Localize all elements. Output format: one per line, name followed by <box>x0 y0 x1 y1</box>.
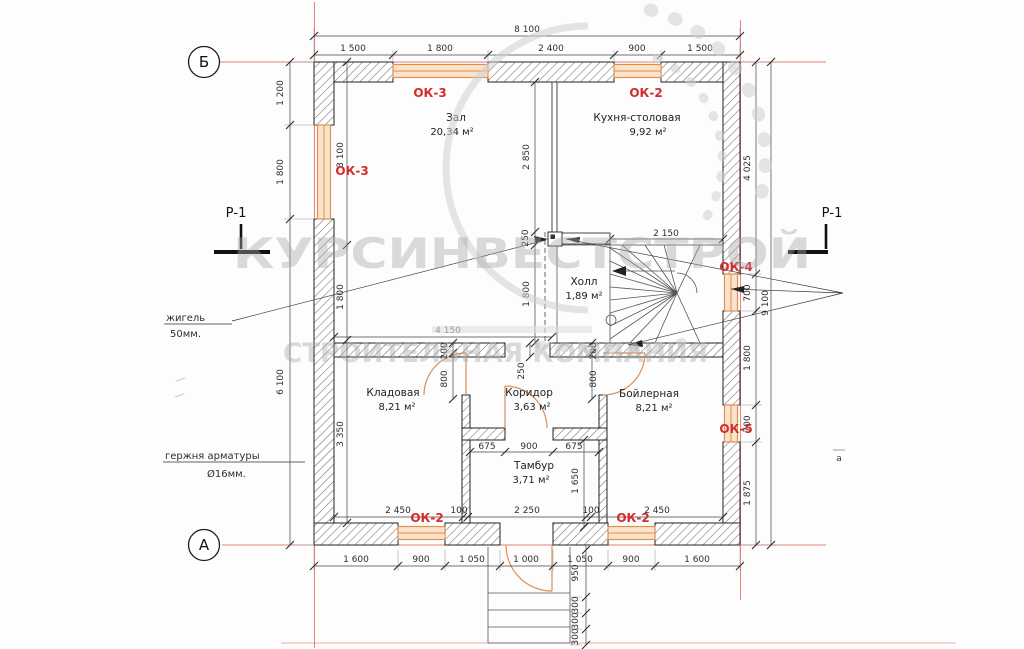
room-area: 1,89 м² <box>566 291 603 302</box>
window-ok3-top <box>393 65 488 78</box>
dim-label: 1 650 <box>571 468 581 494</box>
room-area: 9,92 м² <box>630 127 667 138</box>
floor-plan-drawing: 8 100 1 500 1 800 2 400 900 1 500 1 600 … <box>0 0 1024 649</box>
dim-label: 4 025 <box>743 155 753 181</box>
watermark-dots-inner <box>657 58 722 224</box>
dim-label: 6 100 <box>276 369 286 395</box>
room-area: 3,63 м² <box>514 402 551 413</box>
dim-label: 1 600 <box>684 555 710 565</box>
dim-label: 900 <box>628 44 645 54</box>
door-entry <box>506 545 552 591</box>
dim-label: 1 050 <box>567 555 593 565</box>
window-tag: ОК-2 <box>616 511 649 525</box>
dim-label: 900 <box>412 555 429 565</box>
dim-label: 1 500 <box>340 44 366 54</box>
room-name: Коридор <box>505 387 553 399</box>
section-label-left: Р-1 <box>226 206 247 221</box>
window-tag: ОК-2 <box>629 86 662 100</box>
partition-zal-kitchen <box>552 82 557 232</box>
watermark-bar <box>432 326 592 333</box>
note-text: 50мм. <box>170 329 201 340</box>
dim-label: 2 450 <box>385 506 411 516</box>
window-tag: ОК-5 <box>719 422 752 436</box>
dim-label: 300 <box>571 596 581 613</box>
dim-label: 1 600 <box>343 555 369 565</box>
room-area: 8,21 м² <box>379 402 416 413</box>
dim-label: 300 <box>571 612 581 629</box>
window-tag: ОК-2 <box>410 511 443 525</box>
dim-label: 1 000 <box>513 555 539 565</box>
dim-label: 1 800 <box>276 159 286 185</box>
dim-label: 1 800 <box>427 44 453 54</box>
room-name: Кухня-столовая <box>593 112 680 124</box>
dim-label: 1 800 <box>743 345 753 371</box>
room-name: Кладовая <box>366 387 419 399</box>
dim-label: 9 100 <box>761 290 771 316</box>
dim-label: 675 <box>478 442 495 452</box>
dim-label: 1 800 <box>336 284 346 310</box>
note-text: Ø16мм. <box>207 468 246 480</box>
dim-label: 100 <box>450 506 467 516</box>
dim-label: 950 <box>571 564 581 581</box>
room-area: 8,21 м² <box>636 403 673 414</box>
dim-label: 2 400 <box>538 44 564 54</box>
dim-label: 675 <box>565 442 582 452</box>
dim-label: 1 875 <box>743 480 753 506</box>
watermark-line2: СТРОИТЕЛЬНАЯ КОМПАНИЯ <box>283 338 708 369</box>
dim-label: 1 500 <box>687 44 713 54</box>
dim-label: 1 200 <box>276 80 286 106</box>
watermark-line1: КУРСИНВЕСТСТРОЙ <box>233 228 811 278</box>
dim-label: 2 850 <box>522 144 532 170</box>
note-text: гержня арматуры <box>165 451 260 462</box>
note-text: жигель <box>166 313 205 324</box>
window-tag: ОК-3 <box>335 164 368 178</box>
window-ok2-top <box>614 65 661 78</box>
dim-label: 700 <box>743 284 753 301</box>
stair-post <box>606 315 616 325</box>
room-name: Тамбур <box>513 460 554 472</box>
window-ok3-left <box>318 125 331 219</box>
window-ok2-bottom-right <box>608 527 655 540</box>
dim-label: 1 050 <box>459 555 485 565</box>
window-ok2-bottom-left <box>398 527 445 540</box>
window-ok4-right <box>725 274 738 311</box>
floor-plan-page: 8 100 1 500 1 800 2 400 900 1 500 1 600 … <box>0 0 1024 649</box>
axis-label-top: Б <box>199 53 209 71</box>
dim-label: 2 250 <box>514 506 540 516</box>
window-tag: ОК-3 <box>413 86 446 100</box>
dim-label: 100 <box>582 506 599 516</box>
section-label-right: Р-1 <box>822 206 843 221</box>
room-name: Бойлерная <box>619 388 679 400</box>
axis-label-small: а <box>836 454 842 464</box>
dim-label: 800 <box>440 370 450 387</box>
dim-label: 900 <box>622 555 639 565</box>
edge-fragments <box>175 378 185 397</box>
room-area: 3,71 м² <box>513 475 550 486</box>
dim-label: 3 350 <box>336 421 346 447</box>
dim-label: 900 <box>520 442 537 452</box>
axis-label-bottom: А <box>199 536 210 554</box>
dim-label: 800 <box>589 370 599 387</box>
dim-label: 300 <box>571 628 581 645</box>
